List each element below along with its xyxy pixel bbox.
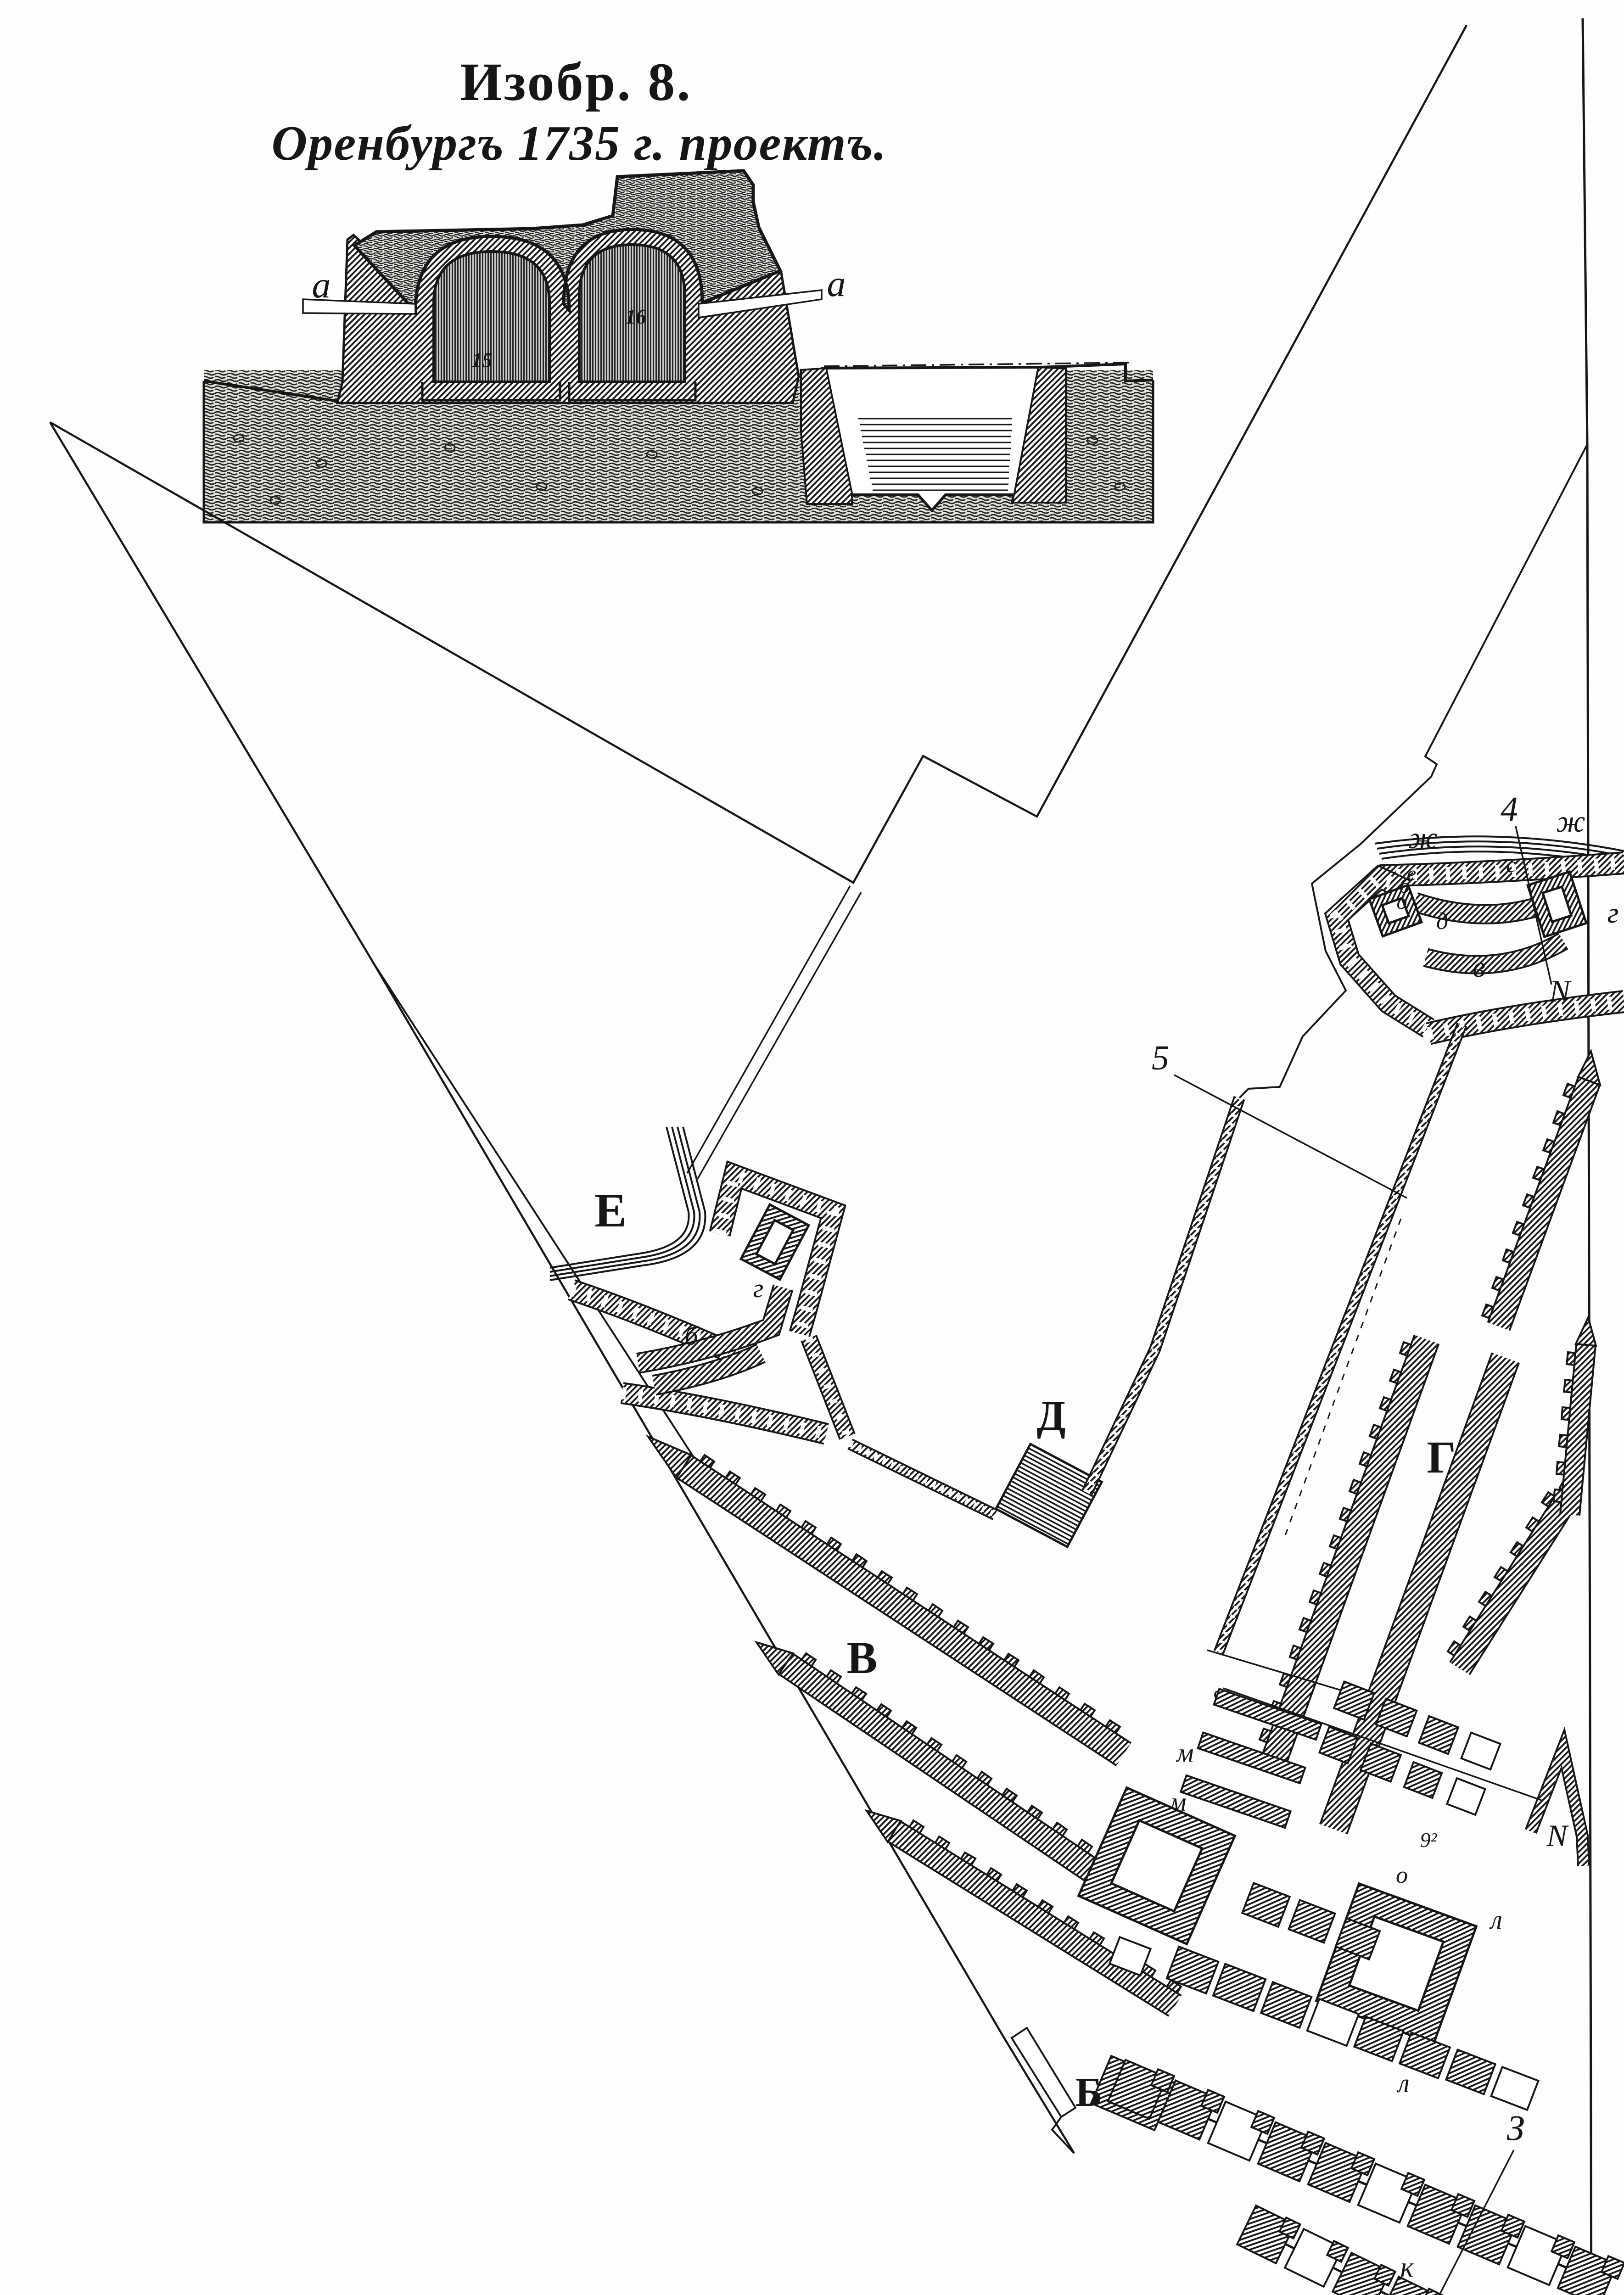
svg-text:Д: Д <box>1036 1392 1065 1439</box>
svg-text:15: 15 <box>471 348 493 372</box>
svg-text:в: в <box>1473 951 1485 983</box>
svg-text:5: 5 <box>1152 1039 1169 1077</box>
svg-text:о: о <box>1397 890 1407 913</box>
svg-text:Б: Б <box>1075 2070 1103 2115</box>
svg-text:г: г <box>753 1273 764 1303</box>
svg-text:Оренбургъ 1735 г. проектъ.: Оренбургъ 1735 г. проектъ. <box>271 116 887 171</box>
svg-text:Е: Е <box>594 1183 627 1237</box>
svg-text:л: л <box>1396 2068 1409 2098</box>
svg-text:4: 4 <box>1501 790 1518 828</box>
svg-text:с: с <box>1506 853 1516 877</box>
svg-text:б: б <box>684 1321 699 1351</box>
svg-text:д: д <box>1436 908 1448 935</box>
svg-text:м: м <box>1176 1738 1193 1768</box>
svg-text:a: a <box>312 264 331 306</box>
svg-text:г: г <box>1607 896 1619 929</box>
svg-text:В: В <box>847 1632 878 1683</box>
svg-text:л: л <box>1489 1905 1502 1935</box>
svg-text:З: З <box>1507 2108 1525 2148</box>
svg-text:16: 16 <box>625 305 646 328</box>
svg-text:N: N <box>1549 974 1572 1008</box>
svg-text:ж: ж <box>1556 804 1585 839</box>
svg-text:о: о <box>1396 1862 1408 1888</box>
svg-text:Изобр. 8.: Изобр. 8. <box>460 52 692 112</box>
svg-text:9²: 9² <box>1420 1828 1438 1852</box>
svg-text:a: a <box>827 263 846 304</box>
svg-text:N: N <box>1546 1818 1569 1853</box>
svg-text:к: к <box>1400 2252 1414 2283</box>
svg-text:ж: ж <box>1408 820 1437 855</box>
